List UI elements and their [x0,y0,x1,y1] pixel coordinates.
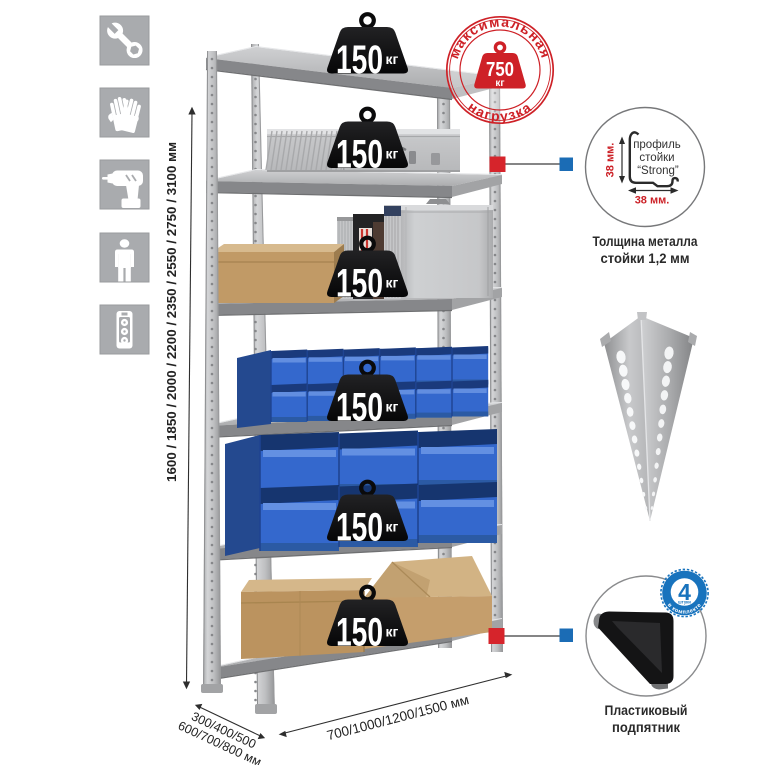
svg-text:подпятник: подпятник [612,719,681,735]
svg-text:150: 150 [336,38,383,82]
svg-text:стойки: стойки [639,152,674,164]
svg-text:штуки: штуки [678,600,691,605]
svg-text:профиль: профиль [633,139,681,151]
svg-text:стойки 1,2 мм: стойки 1,2 мм [601,250,690,266]
svg-text:38 мм.: 38 мм. [605,143,617,178]
svg-text:1600 / 1850 / 2000 / 2200 / 23: 1600 / 1850 / 2000 / 2200 / 2350 / 2550 … [164,142,179,482]
svg-text:Толщина металла: Толщина металла [593,233,698,249]
svg-text:38 мм.: 38 мм. [635,195,670,207]
svg-text:кг: кг [386,51,399,67]
svg-text:кг: кг [495,78,504,89]
svg-text:Пластиковый: Пластиковый [605,702,688,718]
svg-text:“Strong”: “Strong” [637,165,679,177]
